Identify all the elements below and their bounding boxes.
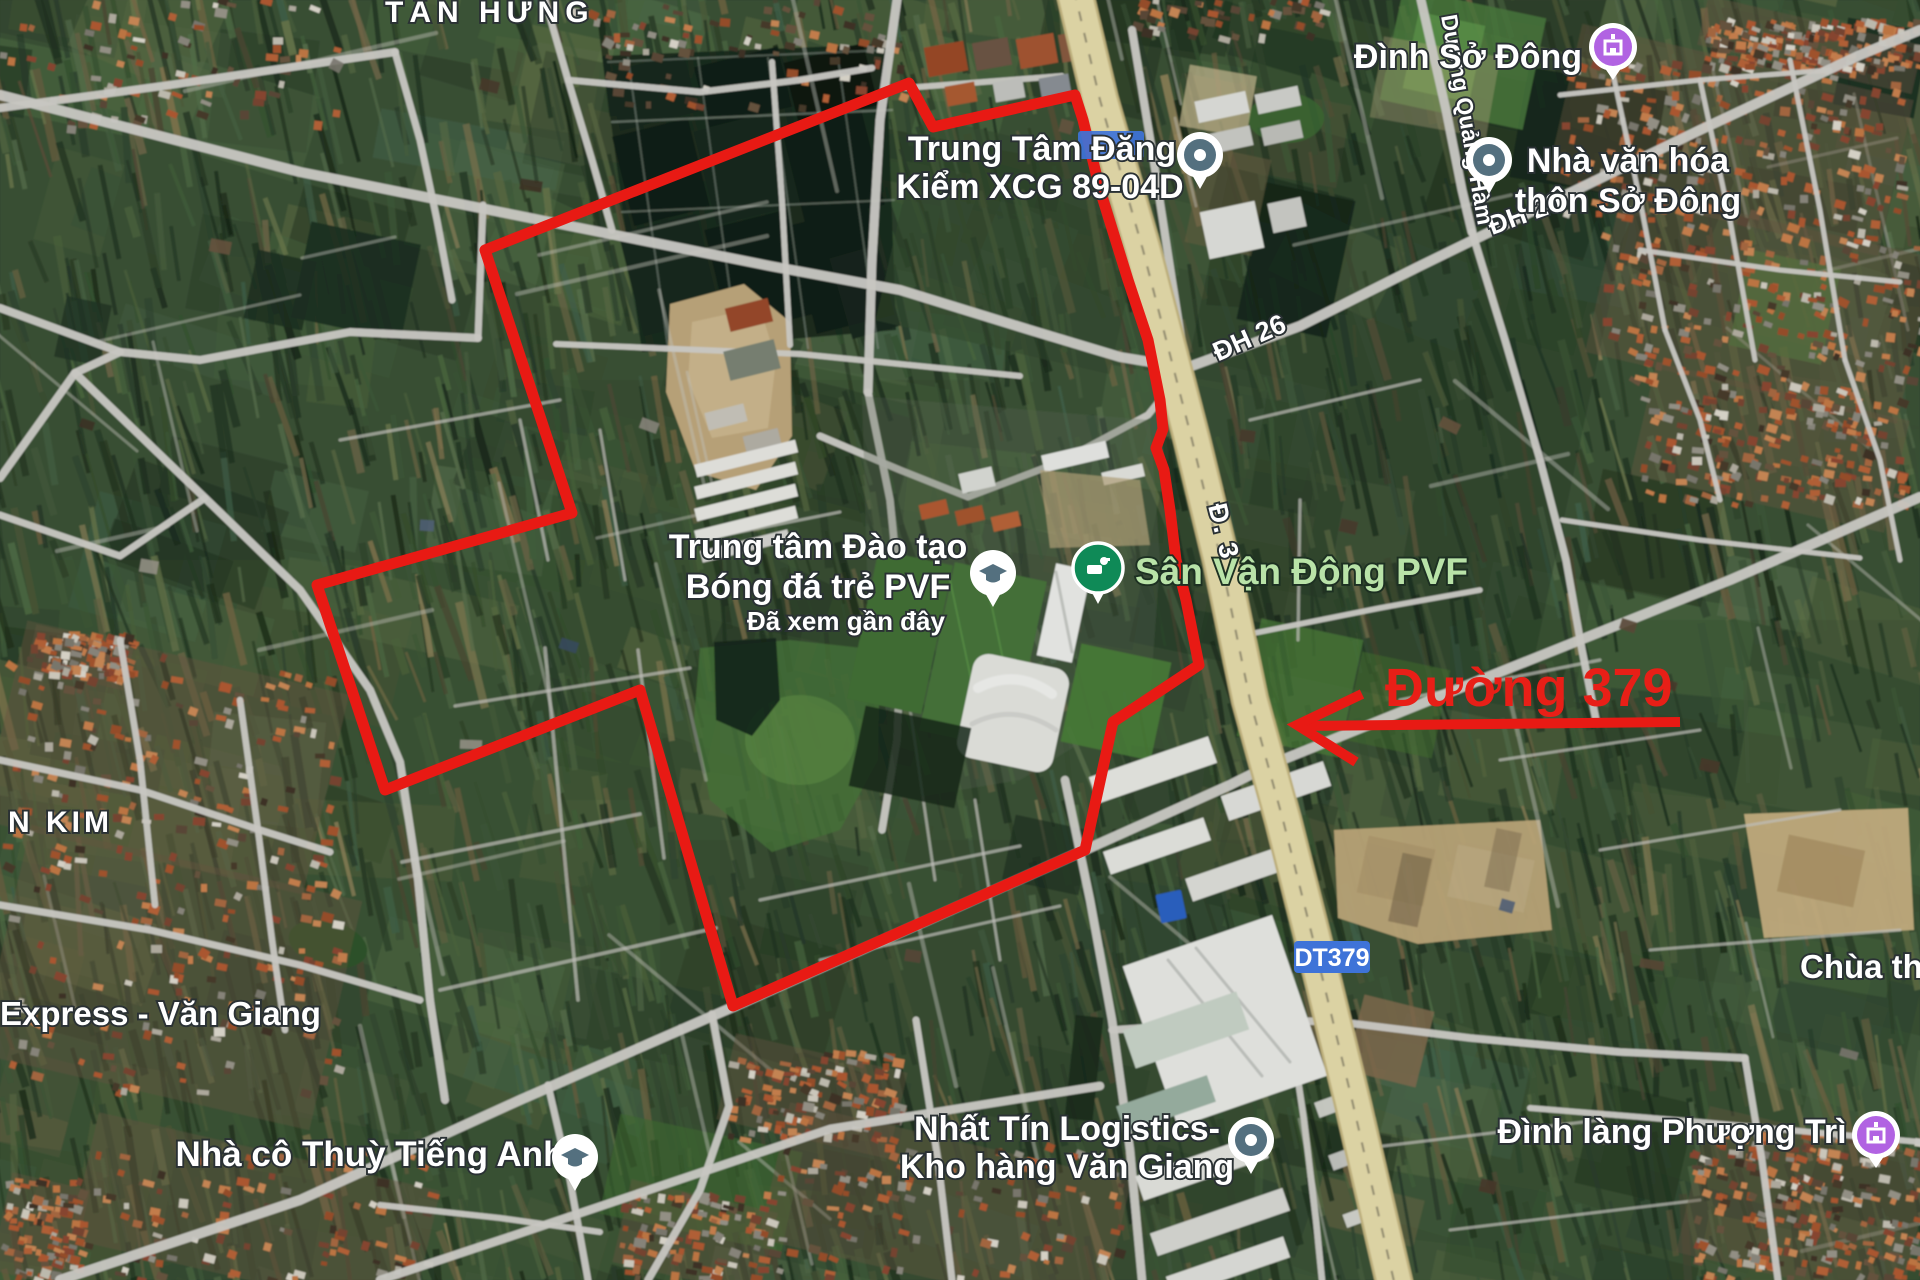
svg-text:Chùa thô: Chùa thô [1800,948,1920,985]
svg-text:Trung tâm Đào tạo: Trung tâm Đào tạo [669,528,967,566]
svg-text:thôn Sở Đông: thôn Sở Đông [1515,182,1741,220]
svg-text:Kho hàng Văn Giang: Kho hàng Văn Giang [900,1148,1234,1186]
svg-text:N KIM: N KIM [8,806,113,839]
svg-text:Express - Văn Giang: Express - Văn Giang [0,995,321,1032]
svg-text:DT379: DT379 [1294,944,1369,972]
svg-text:Trung Tâm Đăng: Trung Tâm Đăng [908,130,1176,168]
svg-text:Kiểm XCG 89-04D: Kiểm XCG 89-04D [896,168,1183,206]
svg-text:Nhất Tín Logistics-: Nhất Tín Logistics- [914,1110,1220,1148]
svg-text:Nhà cô Thuỳ Tiếng Anh: Nhà cô Thuỳ Tiếng Anh [176,1135,565,1174]
svg-text:Bóng đá trẻ PVF: Bóng đá trẻ PVF [686,568,950,606]
svg-text:Nhà văn hóa: Nhà văn hóa [1527,142,1730,180]
svg-text:Đường 379: Đường 379 [1385,658,1673,718]
svg-text:Đình làng Phượng Trì: Đình làng Phượng Trì [1497,1113,1846,1151]
svg-text:Đã xem gần đây: Đã xem gần đây [747,606,946,636]
svg-text:Đình Sở Đông: Đình Sở Đông [1354,38,1582,76]
svg-text:Sân Vận Động PVF: Sân Vận Động PVF [1135,551,1468,592]
svg-text:TÂN HƯNG: TÂN HƯNG [385,0,595,29]
